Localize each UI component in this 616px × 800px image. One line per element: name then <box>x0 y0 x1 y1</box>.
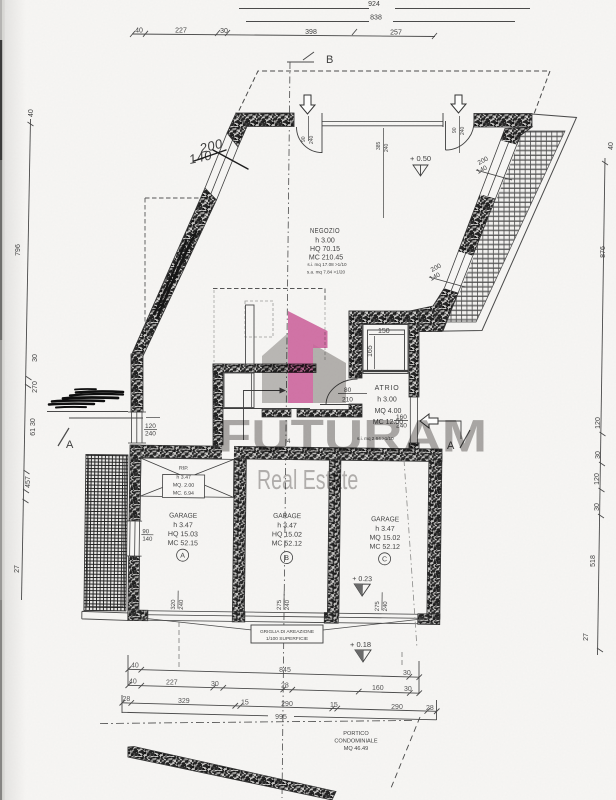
svg-text:HQ 15.02: HQ 15.02 <box>272 531 302 538</box>
svg-text:30: 30 <box>220 28 228 35</box>
svg-text:27: 27 <box>14 565 21 573</box>
svg-text:GARAGE: GARAGE <box>169 513 197 520</box>
svg-text:838: 838 <box>370 15 382 22</box>
svg-text:270: 270 <box>32 381 39 393</box>
svg-text:275: 275 <box>375 601 381 612</box>
svg-text:RIP.: RIP. <box>179 466 188 472</box>
svg-text:257: 257 <box>390 30 402 37</box>
svg-text:s.a. mq 7.84 >1/20: s.a. mq 7.84 >1/20 <box>307 270 346 275</box>
svg-text:30: 30 <box>403 670 411 677</box>
svg-text:398: 398 <box>305 29 317 36</box>
svg-text:+ 0.23: + 0.23 <box>352 576 372 583</box>
svg-text:385: 385 <box>376 141 382 150</box>
svg-text:NEGOZIO: NEGOZIO <box>310 226 340 235</box>
svg-text:40: 40 <box>28 109 35 117</box>
svg-text:160: 160 <box>372 685 384 692</box>
svg-text:Real Estate: Real Estate <box>257 465 358 496</box>
svg-text:240: 240 <box>285 599 291 610</box>
svg-text:275: 275 <box>277 599 283 610</box>
svg-text:240: 240 <box>384 143 390 152</box>
svg-text:1/100 SUPERFICIE: 1/100 SUPERFICIE <box>266 636 308 642</box>
svg-text:HQ 15.03: HQ 15.03 <box>168 531 198 538</box>
svg-text:30: 30 <box>595 451 602 459</box>
svg-text:40: 40 <box>608 142 615 150</box>
svg-text:227: 227 <box>175 28 187 35</box>
svg-text:120: 120 <box>145 423 156 430</box>
svg-text:MC 210.45: MC 210.45 <box>309 255 343 262</box>
svg-text:28: 28 <box>281 683 289 690</box>
svg-text:40: 40 <box>135 28 143 35</box>
svg-text:240: 240 <box>309 135 315 144</box>
svg-text:30: 30 <box>211 681 219 688</box>
svg-text:MC 52.12: MC 52.12 <box>272 540 303 547</box>
svg-text:C: C <box>382 556 387 563</box>
svg-text:27: 27 <box>583 633 590 641</box>
svg-text:+ 0.18: + 0.18 <box>350 640 371 649</box>
svg-text:MQ 15.02: MQ 15.02 <box>369 535 400 542</box>
svg-text:140: 140 <box>142 537 153 543</box>
svg-text:30: 30 <box>32 354 39 362</box>
svg-text:MC 52.12: MC 52.12 <box>370 544 401 551</box>
svg-text:MQ 46.49: MQ 46.49 <box>344 746 369 752</box>
svg-text:120: 120 <box>595 417 602 429</box>
svg-text:30: 30 <box>404 686 412 693</box>
svg-text:876: 876 <box>600 246 607 258</box>
svg-text:FUTURAM: FUTURAM <box>218 411 487 461</box>
svg-text:290: 290 <box>391 704 403 711</box>
svg-text:15: 15 <box>330 702 338 709</box>
svg-text:h 3.47: h 3.47 <box>277 522 297 529</box>
svg-text:28: 28 <box>123 696 131 703</box>
svg-text:518: 518 <box>590 555 597 567</box>
svg-text:329: 329 <box>178 698 190 705</box>
svg-text:B: B <box>326 54 333 66</box>
svg-text:320: 320 <box>171 599 177 610</box>
svg-text:h 3.47: h 3.47 <box>173 522 193 529</box>
svg-text:290: 290 <box>281 701 293 708</box>
svg-text:90: 90 <box>301 136 307 142</box>
svg-text:MQ. 2.00: MQ. 2.00 <box>173 483 195 489</box>
svg-text:B: B <box>284 555 289 562</box>
svg-text:HQ 70.15: HQ 70.15 <box>310 246 340 253</box>
svg-text:GRIGLIA DI AREAZIONE: GRIGLIA DI AREAZIONE <box>260 629 314 635</box>
svg-text:MC 52.15: MC 52.15 <box>168 540 199 547</box>
svg-text:150: 150 <box>378 328 390 335</box>
svg-text:240: 240 <box>383 601 389 612</box>
svg-text:845: 845 <box>279 667 291 674</box>
svg-text:240: 240 <box>179 599 185 610</box>
svg-text:61 30: 61 30 <box>30 418 37 436</box>
svg-text:s.i. mq 17.08 >1/10: s.i. mq 17.08 >1/10 <box>307 262 347 267</box>
svg-text:40: 40 <box>129 679 137 686</box>
svg-text:90: 90 <box>452 127 458 133</box>
svg-text:CONDOMINIALE: CONDOMINIALE <box>334 739 377 745</box>
svg-text:120: 120 <box>594 473 601 485</box>
svg-text:227: 227 <box>166 680 178 687</box>
svg-text:A: A <box>180 553 185 560</box>
svg-text:h 3.47: h 3.47 <box>375 526 395 533</box>
svg-text:796: 796 <box>15 244 22 256</box>
svg-text:MC. 6.94: MC. 6.94 <box>173 491 194 497</box>
svg-text:924: 924 <box>368 1 380 8</box>
svg-text:28: 28 <box>426 705 434 712</box>
svg-text:GARAGE: GARAGE <box>273 513 301 520</box>
svg-text:PORTICO: PORTICO <box>343 731 369 737</box>
svg-text:ATRIO: ATRIO <box>375 385 400 392</box>
svg-text:+ 0.50: + 0.50 <box>410 154 431 163</box>
svg-text:GARAGE: GARAGE <box>371 516 399 523</box>
svg-text:h 3.00: h 3.00 <box>315 238 335 245</box>
svg-text:457: 457 <box>25 476 32 488</box>
svg-text:165: 165 <box>367 345 374 357</box>
svg-text:40: 40 <box>131 663 139 670</box>
svg-text:h 3.47: h 3.47 <box>176 475 191 481</box>
svg-text:240: 240 <box>145 431 156 438</box>
svg-text:15: 15 <box>241 700 249 707</box>
svg-text:30: 30 <box>594 503 601 511</box>
svg-text:h 3.00: h 3.00 <box>377 397 397 404</box>
svg-text:995: 995 <box>275 714 287 721</box>
svg-text:240: 240 <box>460 126 466 135</box>
svg-text:A: A <box>66 439 74 451</box>
